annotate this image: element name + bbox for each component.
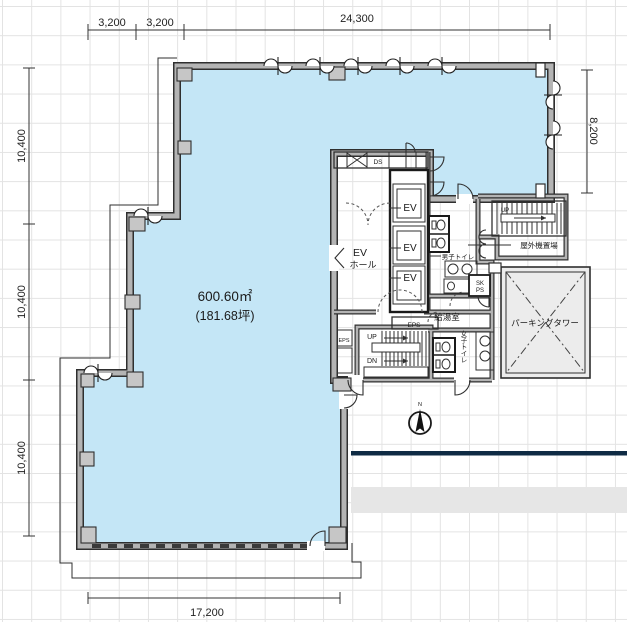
column	[178, 141, 191, 154]
dim-label-3200-b: 3,200	[146, 17, 174, 29]
column	[80, 452, 94, 466]
column	[329, 527, 346, 543]
ev3-label: EV	[403, 273, 417, 284]
floor-plan-drawing: 3,200 3,200 24,300 10,400 10,400 10,400 …	[0, 0, 627, 622]
dim-label-3200-a: 3,200	[98, 17, 126, 29]
area-sqm-label: 600.60㎡	[198, 289, 253, 304]
dim-label-24300: 24,300	[340, 13, 374, 25]
eps-core-label: EPS	[407, 322, 421, 329]
eps-shaft-label: EPS	[338, 338, 349, 344]
tenant-area-fill	[80, 66, 551, 546]
toilet-icon	[480, 336, 490, 346]
column	[125, 295, 140, 309]
ev1-label: EV	[403, 203, 417, 214]
outdoor-stair-up-label: UP	[501, 208, 509, 214]
door-gap-ev-hall	[329, 245, 339, 271]
womens-toilet-label: 女子トイレ	[461, 329, 468, 364]
sk-label: SK	[476, 281, 484, 287]
column	[177, 68, 192, 81]
column	[127, 372, 143, 387]
parking-connector	[489, 263, 501, 273]
dim-label-17200: 17,200	[190, 607, 224, 619]
compass-north-label: N	[418, 402, 422, 408]
column	[81, 374, 94, 387]
dim-line-bottom	[88, 592, 340, 604]
stair-up-label: UP	[367, 334, 377, 341]
ev-hall-label-1: EV	[353, 247, 367, 259]
area-tsubo-label: (181.68坪)	[195, 309, 254, 323]
wall-notch	[536, 63, 545, 77]
mens-toilet-label: 男子トイレ	[442, 253, 475, 261]
ps-label: PS	[476, 288, 484, 294]
stair-landing-bar	[372, 343, 420, 352]
site-lines	[351, 451, 627, 513]
parking-tower-label: パーキングタワー	[511, 318, 579, 328]
toilet-icon	[480, 351, 490, 361]
dim-label-10400-lower: 10,400	[16, 441, 28, 475]
ev-hall-label-2: ホール	[349, 260, 376, 270]
floor-plan: 3,200 3,200 24,300 10,400 10,400 10,400 …	[0, 0, 627, 622]
eps-shaft-rooms	[337, 330, 352, 373]
column	[129, 217, 145, 231]
compass	[409, 409, 431, 434]
wall-notch	[536, 184, 545, 198]
kitchenette-label: 給湯室	[434, 312, 460, 322]
ev2-label: EV	[403, 243, 417, 254]
sink-icon	[448, 264, 458, 274]
site-gray-band	[351, 487, 627, 513]
sink-icon	[462, 264, 472, 274]
column	[81, 527, 96, 543]
stair-dn-label: DN	[367, 358, 377, 365]
door-gap-core-south-right	[454, 375, 469, 385]
dim-label-10400-middle: 10,400	[16, 285, 28, 319]
dashed-double-door-north	[346, 203, 390, 225]
site-navy-line	[351, 451, 627, 456]
shaft-room	[337, 348, 352, 373]
door-gap-right-wall	[339, 391, 349, 409]
outdoor-unit-area-label: 屋外機置場	[520, 240, 558, 250]
basin-icon	[448, 282, 455, 290]
ds-label: DS	[373, 159, 383, 166]
stair-bottom-landing	[364, 367, 428, 377]
dim-label-10400-upper: 10,400	[16, 129, 28, 163]
dim-label-8200: 8,200	[587, 117, 599, 145]
